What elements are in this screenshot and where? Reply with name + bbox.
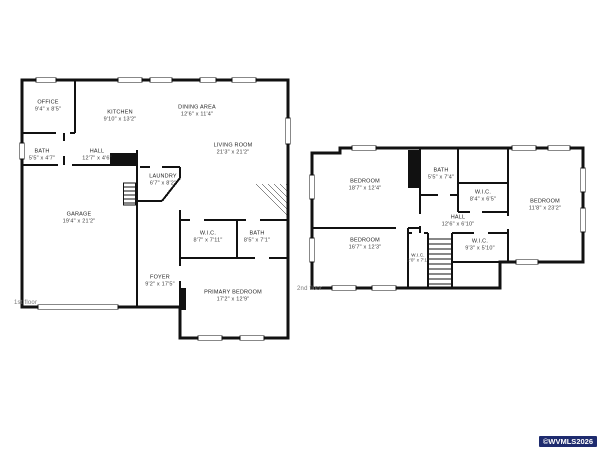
room-name: OFFICE xyxy=(35,100,61,107)
room-name: HALL xyxy=(442,215,475,222)
room-dims: 11'8" x 23'2" xyxy=(529,206,561,213)
room-dims: 9'10" x 13'2" xyxy=(104,117,137,124)
room-label-bath-upper: BATH 5'5" x 7'4" xyxy=(428,168,454,183)
room-name: HALL xyxy=(82,149,112,156)
room-label-living-room: LIVING ROOM 21'3" x 21'2" xyxy=(214,143,253,158)
room-label-dining-area: DINING AREA 12'6" x 11'4" xyxy=(178,105,216,120)
room-name: BATH xyxy=(244,231,270,238)
room-name: LIVING ROOM xyxy=(214,143,253,150)
room-dims: 8'7" x 7'11" xyxy=(193,238,222,245)
room-dims: 9'2" x 17'5" xyxy=(145,282,175,289)
room-name: BATH xyxy=(29,149,55,156)
room-dims: 16'7" x 12'3" xyxy=(349,245,382,252)
room-name: LAUNDRY xyxy=(149,174,177,181)
room-label-office: OFFICE 9'4" x 8'5" xyxy=(35,100,61,115)
room-dims: 5'5" x 7'4" xyxy=(428,175,454,182)
room-name: BATH xyxy=(428,168,454,175)
room-dims: 12'6" x 11'4" xyxy=(178,112,216,119)
room-dims: 17'2" x 12'9" xyxy=(204,297,262,304)
room-name: FOYER xyxy=(145,275,175,282)
floor-1-caption: 1st floor xyxy=(14,300,37,306)
room-dims: 12'6" x 6'10" xyxy=(442,222,475,229)
room-name: BEDROOM xyxy=(349,179,382,186)
room-label-laundry: LAUNDRY 6'7" x 8'2" xyxy=(149,174,177,189)
room-name: W.I.C. xyxy=(465,239,495,246)
room-label-bath-1: BATH 5'5" x 4'7" xyxy=(29,149,55,164)
watermark-badge: ©WVMLS2026 xyxy=(539,436,597,448)
room-name: BEDROOM xyxy=(529,199,561,206)
room-name: GARAGE xyxy=(63,212,96,219)
room-dims: 9'4" x 8'5" xyxy=(35,107,61,114)
room-label-foyer: FOYER 9'2" x 17'5" xyxy=(145,275,175,290)
room-label-bedroom-3: BEDROOM 16'7" x 12'3" xyxy=(349,238,382,253)
room-name: DINING AREA xyxy=(178,105,216,112)
room-dims: 8'4" x 6'5" xyxy=(470,197,496,204)
room-label-bedroom-1: BEDROOM 18'7" x 12'4" xyxy=(349,179,382,194)
room-label-kitchen: KITCHEN 9'10" x 13'2" xyxy=(104,110,137,125)
room-dims: 2'0" x 7'1" xyxy=(407,258,429,263)
room-name: W.I.C. xyxy=(470,190,496,197)
room-label-garage: GARAGE 19'4" x 21'2" xyxy=(63,212,96,227)
room-label-hall-upper: HALL 12'6" x 6'10" xyxy=(442,215,475,230)
room-name: BEDROOM xyxy=(349,238,382,245)
room-label-wic-2: W.I.C. 8'4" x 6'5" xyxy=(470,190,496,205)
room-dims: 6'7" x 8'2" xyxy=(149,181,177,188)
room-dims: 12'7" x 4'6" xyxy=(82,156,112,163)
room-name: PRIMARY BEDROOM xyxy=(204,290,262,297)
room-name: KITCHEN xyxy=(104,110,137,117)
room-label-bedroom-2: BEDROOM 11'8" x 23'2" xyxy=(529,199,561,214)
room-dims: 18'7" x 12'4" xyxy=(349,186,382,193)
floor-2-caption: 2nd floor xyxy=(297,286,322,292)
room-label-hall: HALL 12'7" x 4'6" xyxy=(82,149,112,164)
room-dims: 8'5" x 7'1" xyxy=(244,238,270,245)
room-dims: 9'3" x 5'10" xyxy=(465,246,495,253)
floorplan-canvas: OFFICE 9'4" x 8'5" KITCHEN 9'10" x 13'2"… xyxy=(0,0,600,450)
room-label-wic-3: W.I.C. 2'0" x 7'1" xyxy=(407,253,429,264)
room-label-primary-bedroom: PRIMARY BEDROOM 17'2" x 12'9" xyxy=(204,290,262,305)
room-name: W.I.C. xyxy=(193,231,222,238)
room-dims: 19'4" x 21'2" xyxy=(63,219,96,226)
room-dims: 21'3" x 21'2" xyxy=(214,150,253,157)
room-label-bath-2: BATH 8'5" x 7'1" xyxy=(244,231,270,246)
room-label-wic-1: W.I.C. 8'7" x 7'11" xyxy=(193,231,222,246)
room-dims: 5'5" x 4'7" xyxy=(29,156,55,163)
room-label-wic-4: W.I.C. 9'3" x 5'10" xyxy=(465,239,495,254)
